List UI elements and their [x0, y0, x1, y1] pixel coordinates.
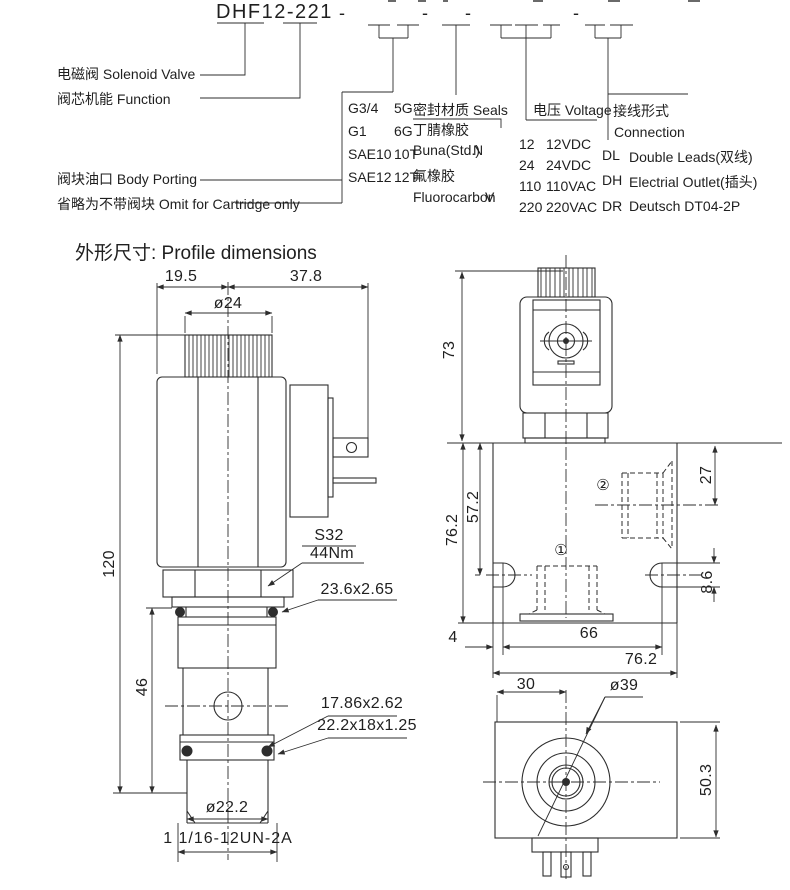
dim-edge-gap: 4 — [448, 629, 457, 647]
connection-option-row: DR Deutsch DT04-2P — [602, 198, 740, 214]
oring-upper — [175, 607, 185, 617]
voltage-code: 12 — [519, 136, 546, 152]
dim-slot-span: 66 — [580, 625, 598, 643]
connection-label: Deutsch DT04-2P — [629, 198, 740, 214]
side-view-drawing — [113, 282, 407, 862]
voltage-option-row: 12 12VDC — [519, 136, 591, 152]
plug-housing — [532, 838, 598, 852]
leader-omit-note: 省略为不带阀块 Omit for Cartridge only — [57, 194, 300, 214]
voltage-label: 220VAC — [546, 199, 597, 215]
voltage-option-row: 110 110VAC — [519, 178, 596, 194]
dim-coil-top-diameter: ø39 — [610, 677, 638, 695]
seal-option-row: Buna(Std.) N — [413, 142, 483, 158]
code-dash-3: - — [465, 3, 471, 24]
dim-connector-height: 73 — [441, 341, 459, 359]
porting-option-row: SAE10 10T — [348, 146, 418, 162]
connection-header-en: Connection — [614, 124, 685, 140]
dim-cartridge-height: 46 — [134, 678, 152, 696]
coil-top-view-drawing — [483, 690, 720, 880]
dim-block-depth: 50.3 — [698, 764, 716, 796]
dim-thread-spec: 1 1/16-12UN-2A — [163, 830, 293, 848]
porting-option-row: G3/4 5G — [348, 100, 413, 116]
connection-label: Double Leads(双线) — [629, 147, 753, 167]
spade-terminal — [333, 438, 368, 457]
dim-block-side: 76.2 — [444, 514, 462, 546]
voltage-label: 24VDC — [546, 157, 591, 173]
plug-pin-right — [583, 852, 591, 876]
dim-coil-center-offset: 30 — [517, 676, 535, 694]
dim-backup-ring: 22.2x18x1.25 — [317, 717, 417, 735]
voltage-option-row: 24 24VDC — [519, 157, 591, 173]
leader-solenoid-valve: 电磁阀 Solenoid Valve — [57, 64, 195, 84]
dim-oring-lower: 17.86x2.62 — [321, 695, 403, 713]
coil-connector-block — [290, 385, 328, 517]
voltage-header: 电压 Voltage — [533, 100, 612, 120]
port-1-marker: ① — [554, 541, 567, 559]
voltage-label: 12VDC — [546, 136, 591, 152]
hex-nut-top — [523, 413, 608, 438]
dim-block-width: 76.2 — [625, 651, 657, 669]
porting-size: G3/4 — [348, 100, 394, 116]
section-heading: 外形尺寸: Profile dimensions — [75, 238, 317, 265]
coil-ribbed-cap — [185, 335, 272, 377]
porting-size: G1 — [348, 123, 394, 139]
voltage-label: 110VAC — [546, 178, 596, 194]
dim-19-5: 19.5 — [165, 268, 197, 286]
dim-37-8: 37.8 — [290, 268, 322, 286]
coil-body — [157, 377, 286, 567]
seal-option-cn: 氟橡胶 — [413, 166, 455, 186]
dim-thread-diameter: ø22.2 — [206, 799, 248, 817]
seals-header: 密封材质 Seals — [413, 100, 508, 120]
connection-label: Electrial Outlet(插头) — [629, 172, 757, 192]
connection-option-row: DH Electrial Outlet(插头) — [602, 172, 757, 192]
porting-option-row: G1 6G — [348, 123, 413, 139]
seal-name: Fluorocarbon — [413, 189, 485, 205]
dim-port2-center: 27 — [698, 466, 716, 484]
dim-coil-diameter: ø24 — [214, 295, 242, 313]
voltage-code: 110 — [519, 178, 546, 194]
connection-code: DL — [602, 147, 629, 167]
terminal-pin — [333, 478, 376, 483]
connection-option-row: DL Double Leads(双线) — [602, 147, 753, 167]
code-dash-2: - — [422, 3, 428, 24]
connection-code: DH — [602, 172, 629, 192]
dim-port-depth: 57.2 — [465, 491, 483, 523]
dim-hex-size: S32 — [314, 527, 343, 545]
dim-torque: 44Nm — [310, 545, 354, 563]
porting-size: SAE10 — [348, 146, 394, 162]
port-2-marker: ② — [596, 476, 609, 494]
din-connector-gland-nut — [538, 268, 595, 297]
datasheet-page: DHF12-221 - - - - 电磁阀 Solenoid Valve 阀芯机… — [0, 0, 790, 890]
seal-option-cn: 丁腈橡胶 — [413, 120, 469, 140]
connector-view-drawing — [447, 255, 782, 446]
dim-oring-top: 23.6x2.65 — [321, 581, 394, 599]
connection-header-cn: 接线形式 — [613, 101, 669, 121]
backup-ring-groove — [180, 735, 274, 760]
dim-slot-height: 8.6 — [699, 570, 717, 593]
porting-code: 5G — [394, 100, 413, 116]
seal-option-row: Fluorocarbon V — [413, 189, 494, 205]
connection-code: DR — [602, 198, 629, 214]
model-code-title: DHF12-221 — [216, 1, 333, 24]
leader-function: 阀芯机能 Function — [57, 89, 171, 109]
valve-block-outline — [493, 443, 677, 623]
seal-name: Buna(Std.) — [413, 142, 473, 158]
code-dash-4: - — [573, 3, 579, 24]
dim-overall-height: 120 — [101, 550, 119, 578]
voltage-code: 220 — [519, 199, 546, 215]
code-dash-1: - — [339, 3, 345, 24]
leader-body-porting: 阀块油口 Body Porting — [57, 169, 197, 189]
porting-option-row: SAE12 12T — [348, 169, 418, 185]
plug-pin-left — [543, 852, 551, 876]
seal-code: V — [485, 189, 494, 205]
port-1-hidden — [529, 566, 605, 614]
voltage-code: 24 — [519, 157, 546, 173]
seal-code: N — [473, 142, 483, 158]
porting-code: 6G — [394, 123, 413, 139]
voltage-option-row: 220 220VAC — [519, 199, 597, 215]
porting-size: SAE12 — [348, 169, 394, 185]
